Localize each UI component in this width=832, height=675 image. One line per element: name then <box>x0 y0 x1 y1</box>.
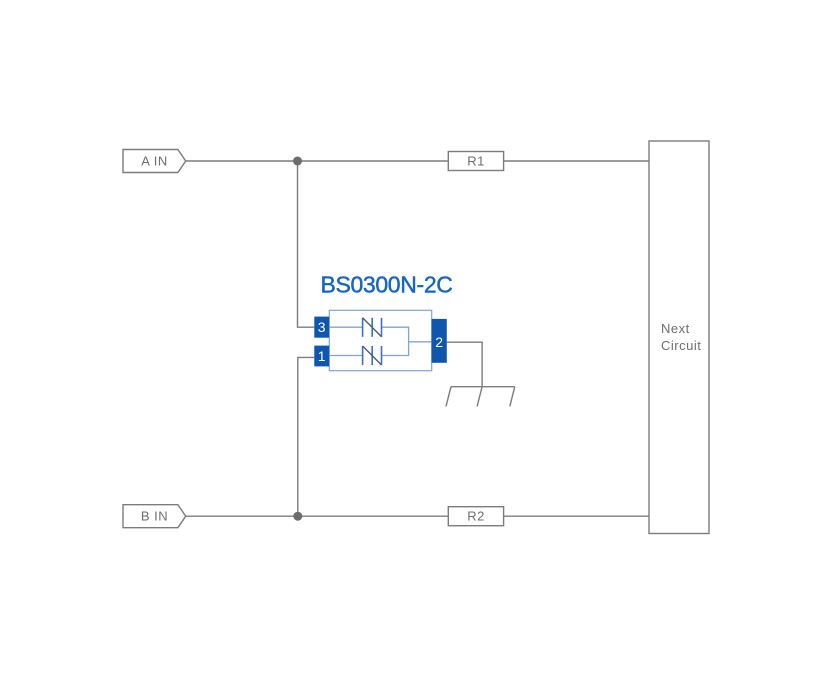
svg-text:BS0300N-2C: BS0300N-2C <box>321 272 453 298</box>
svg-text:A IN: A IN <box>141 154 168 169</box>
svg-text:2: 2 <box>435 334 443 350</box>
svg-text:3: 3 <box>318 319 326 335</box>
svg-text:Next: Next <box>661 321 690 336</box>
svg-text:R1: R1 <box>467 154 485 169</box>
svg-text:1: 1 <box>318 348 326 364</box>
svg-text:R2: R2 <box>467 509 485 524</box>
svg-text:Circuit: Circuit <box>661 338 701 353</box>
svg-text:B IN: B IN <box>141 509 168 524</box>
